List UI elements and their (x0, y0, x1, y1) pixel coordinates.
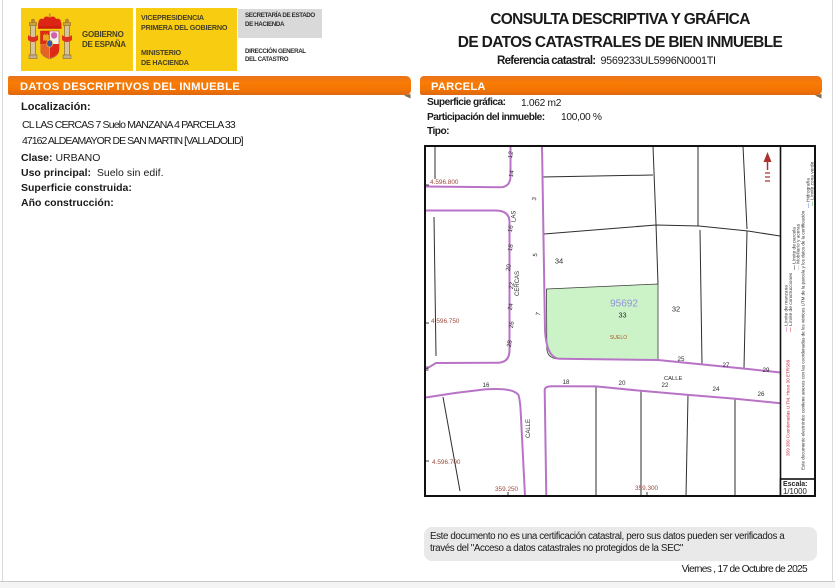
svg-text:33: 33 (619, 311, 627, 320)
svg-text:Este documento electrónico con: Este documento electrónico contiene anex… (801, 210, 806, 470)
svg-text:29: 29 (763, 367, 770, 374)
svg-text:CERCAS: CERCAS (515, 271, 521, 296)
svg-text:LAS: LAS (512, 211, 518, 222)
svg-text:16: 16 (483, 382, 490, 389)
svg-text:— Límite de construcciones: — Límite de construcciones (788, 272, 794, 332)
svg-text:25: 25 (678, 356, 685, 363)
svg-text:34: 34 (555, 257, 563, 266)
svg-text:SUELO: SUELO (610, 335, 628, 341)
svg-text:26: 26 (758, 391, 765, 398)
svg-text:4.596.800: 4.596.800 (430, 179, 459, 186)
svg-text:4.596.750: 4.596.750 (431, 318, 460, 325)
svg-text:359.300: 359.300 (635, 485, 659, 492)
svg-text:18: 18 (563, 379, 570, 386)
svg-text:CALLE: CALLE (526, 419, 532, 438)
svg-text:1/1000: 1/1000 (783, 487, 808, 496)
svg-text:20: 20 (619, 380, 626, 387)
svg-text:22: 22 (662, 382, 669, 389)
svg-text:27: 27 (723, 362, 730, 369)
svg-text:4.596.700: 4.596.700 (432, 459, 461, 466)
svg-text:359.250: 359.250 (495, 486, 519, 493)
svg-text:32: 32 (672, 305, 680, 314)
svg-text:95692: 95692 (610, 299, 638, 310)
svg-text:359 350 Coordenadas U.TM. Huso: 359 350 Coordenadas U.TM. Huso 30 ETRS89 (786, 359, 791, 456)
svg-text:24: 24 (713, 386, 720, 393)
